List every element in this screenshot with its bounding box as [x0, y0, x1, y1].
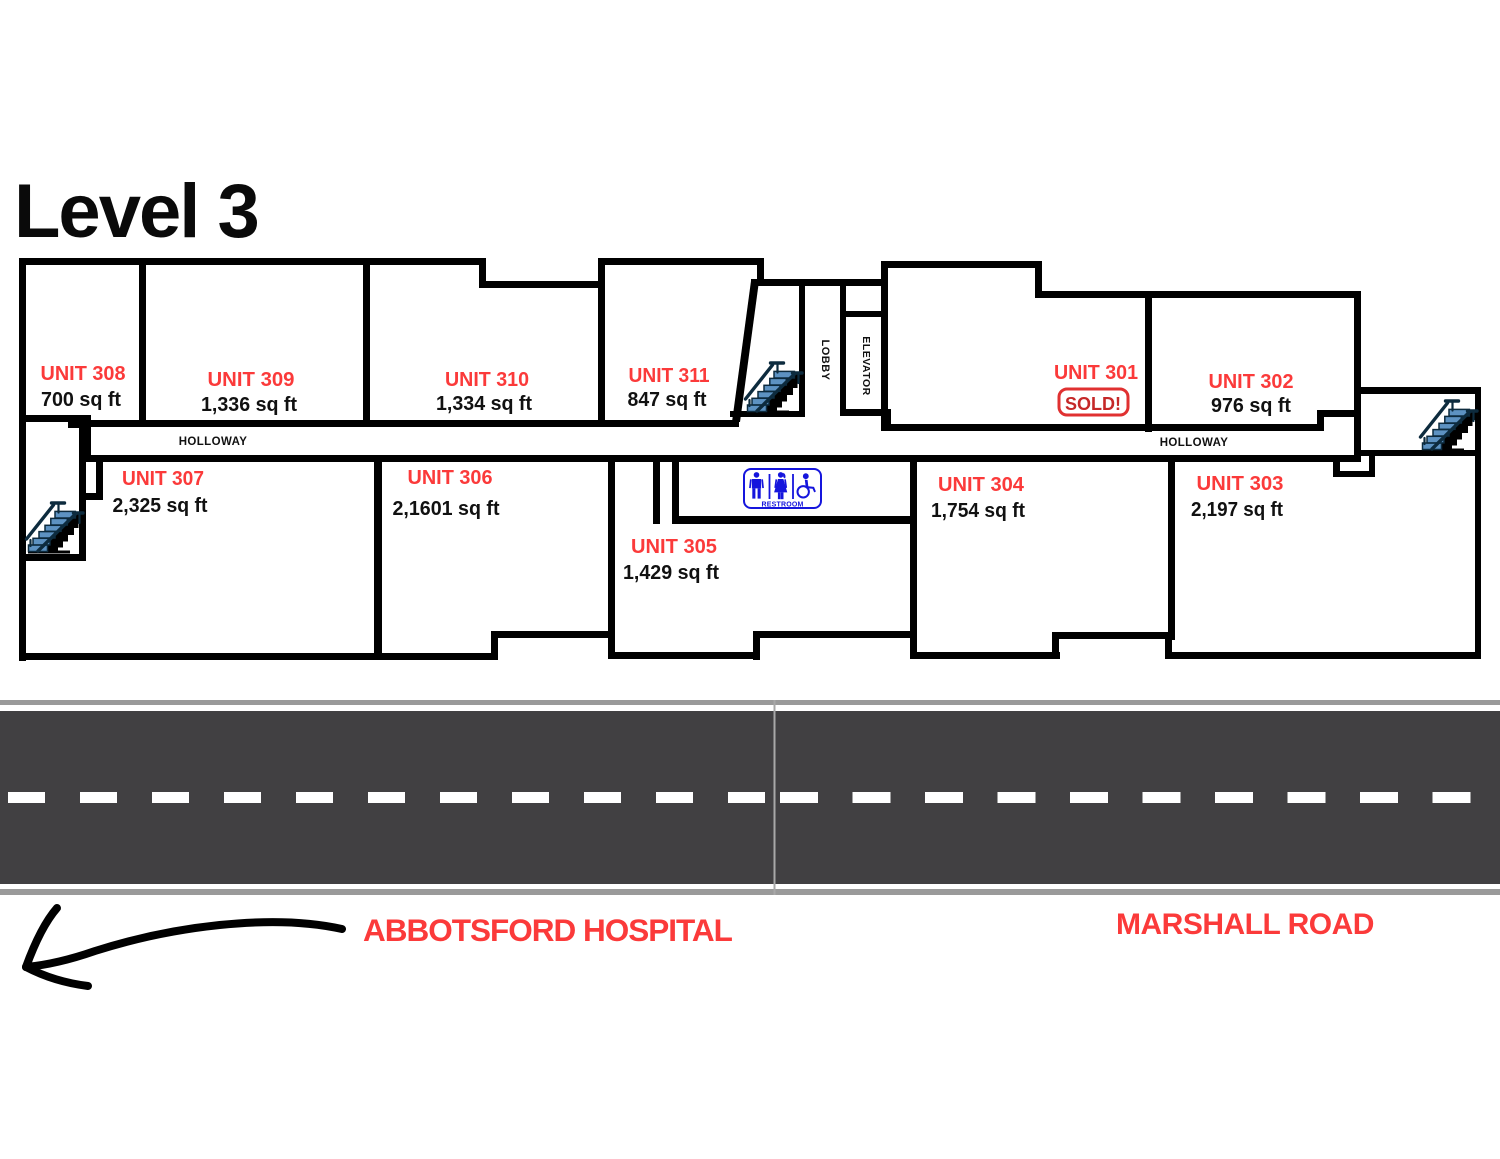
svg-text:UNIT 301: UNIT 301 [1054, 361, 1138, 384]
svg-text:2,197 sq ft: 2,197 sq ft [1191, 499, 1283, 521]
svg-text:UNIT 306: UNIT 306 [408, 466, 493, 489]
svg-text:UNIT 302: UNIT 302 [1209, 370, 1294, 393]
svg-text:UNIT 307: UNIT 307 [122, 467, 204, 490]
svg-text:UNIT 309: UNIT 309 [208, 368, 295, 391]
svg-text:1,429 sq ft: 1,429 sq ft [623, 562, 719, 584]
svg-text:UNIT 311: UNIT 311 [629, 364, 710, 387]
svg-text:HOLLOWAY: HOLLOWAY [179, 436, 248, 448]
svg-text:RESTROOM: RESTROOM [761, 501, 803, 508]
svg-text:2,325 sq ft: 2,325 sq ft [113, 495, 208, 517]
svg-text:UNIT 305: UNIT 305 [631, 535, 717, 558]
svg-text:976 sq ft: 976 sq ft [1211, 395, 1291, 417]
svg-text:HOLLOWAY: HOLLOWAY [1160, 437, 1229, 449]
svg-text:ELEVATOR: ELEVATOR [860, 336, 872, 395]
svg-text:UNIT 308: UNIT 308 [41, 362, 126, 385]
svg-text:LOBBY: LOBBY [819, 340, 831, 381]
svg-text:MARSHALL ROAD: MARSHALL ROAD [1116, 908, 1374, 941]
svg-text:1,336 sq ft: 1,336 sq ft [201, 394, 297, 416]
svg-text:1,754 sq ft: 1,754 sq ft [931, 500, 1025, 522]
svg-text:UNIT 303: UNIT 303 [1197, 472, 1284, 495]
svg-text:1,334 sq ft: 1,334 sq ft [436, 393, 532, 415]
svg-text:UNIT 304: UNIT 304 [938, 473, 1025, 496]
svg-text:847 sq ft: 847 sq ft [628, 389, 707, 411]
svg-text:Level 3: Level 3 [14, 169, 258, 254]
svg-text:SOLD!: SOLD! [1065, 394, 1121, 414]
svg-text:ABBOTSFORD HOSPITAL: ABBOTSFORD HOSPITAL [363, 912, 733, 948]
svg-text:2,1601 sq ft: 2,1601 sq ft [393, 498, 500, 520]
svg-text:UNIT 310: UNIT 310 [445, 368, 529, 391]
svg-text:700 sq ft: 700 sq ft [41, 389, 121, 411]
